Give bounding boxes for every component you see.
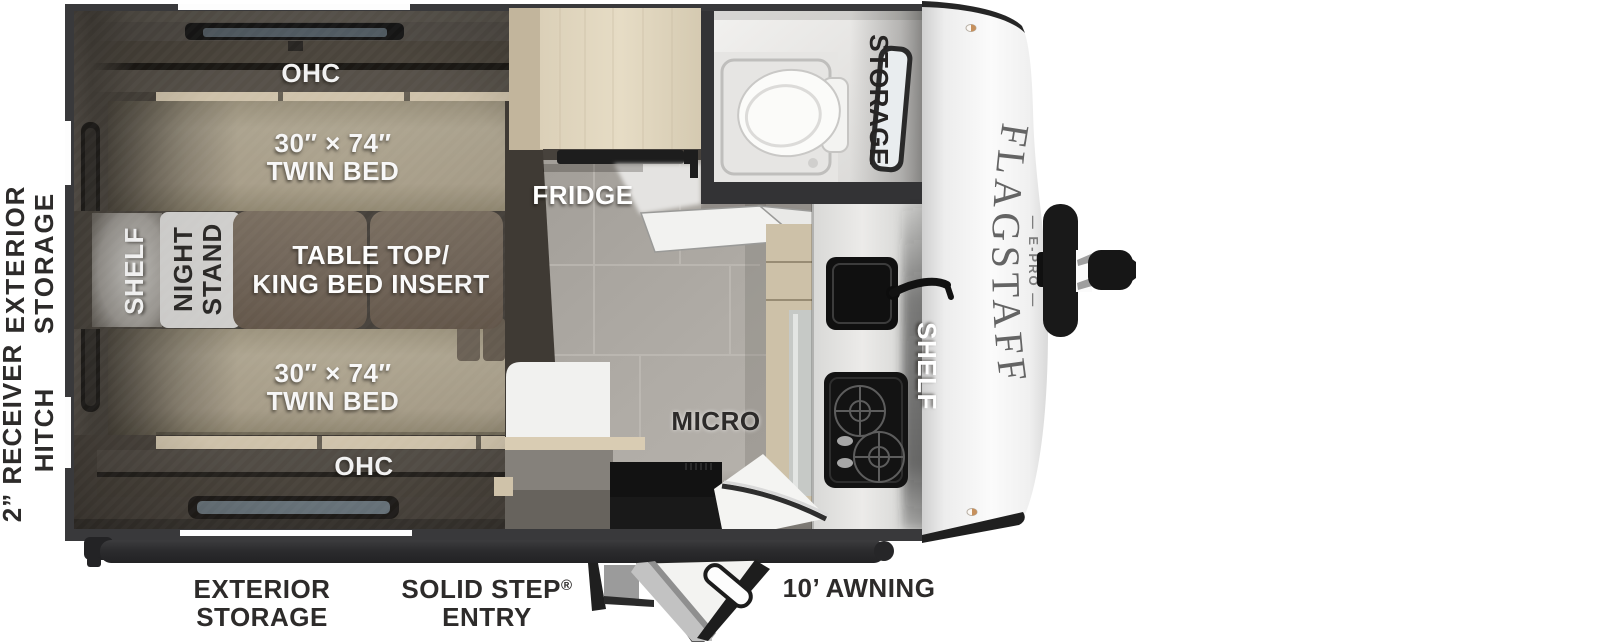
svg-text:STORAGE: STORAGE xyxy=(29,192,59,334)
svg-text:EXTERIOR: EXTERIOR xyxy=(194,574,331,604)
svg-text:EXTERIOR: EXTERIOR xyxy=(0,185,30,334)
svg-text:SOLID STEP®: SOLID STEP® xyxy=(401,574,572,604)
svg-text:10’ AWNING: 10’ AWNING xyxy=(783,573,936,603)
svg-text:HITCH: HITCH xyxy=(29,388,59,472)
svg-text:2” RECEIVER: 2” RECEIVER xyxy=(0,344,27,523)
svg-text:ENTRY: ENTRY xyxy=(442,602,532,632)
svg-text:MICRO: MICRO xyxy=(671,406,760,436)
svg-text:STORAGE: STORAGE xyxy=(196,602,328,632)
svg-text:FRIDGE: FRIDGE xyxy=(532,180,633,210)
svg-text:STORAGE: STORAGE xyxy=(864,34,894,166)
svg-text:SHELF: SHELF xyxy=(912,322,942,410)
